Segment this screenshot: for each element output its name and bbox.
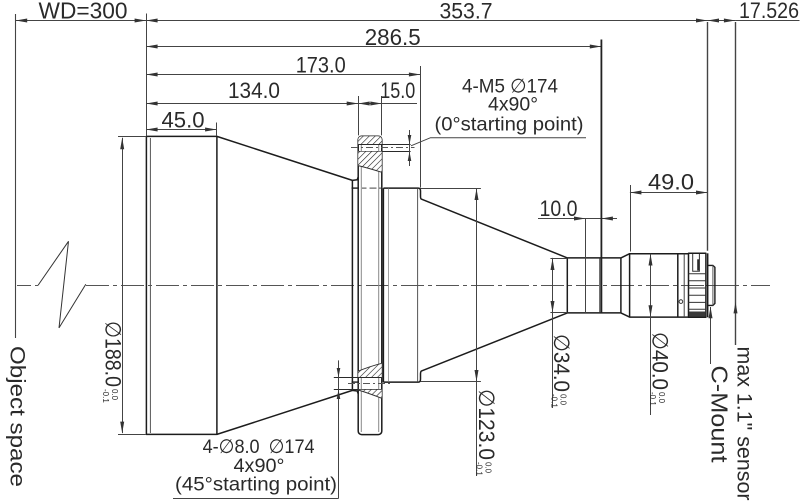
svg-text:4x90°: 4x90° bbox=[488, 93, 538, 115]
svg-text:-0.1: -0.1 bbox=[550, 394, 559, 408]
svg-text:∅34.0: ∅34.0 bbox=[549, 334, 574, 392]
svg-text:17.526: 17.526 bbox=[739, 0, 799, 23]
svg-text:0.0: 0.0 bbox=[559, 394, 568, 406]
svg-text:0.0: 0.0 bbox=[484, 462, 493, 474]
svg-text:134.0: 134.0 bbox=[228, 78, 280, 103]
svg-text:353.7: 353.7 bbox=[440, 0, 493, 24]
svg-text:10.0: 10.0 bbox=[540, 196, 578, 221]
svg-text:Object space: Object space bbox=[6, 346, 29, 487]
svg-text:173.0: 173.0 bbox=[296, 52, 346, 77]
svg-text:0.0: 0.0 bbox=[657, 392, 666, 404]
svg-text:max 1.1" sensor: max 1.1" sensor bbox=[733, 347, 757, 501]
svg-text:15.0: 15.0 bbox=[380, 78, 415, 103]
svg-text:(45°starting point): (45°starting point) bbox=[175, 474, 337, 496]
svg-text:-0.1: -0.1 bbox=[475, 462, 484, 476]
svg-text:∅188.0: ∅188.0 bbox=[101, 321, 126, 387]
svg-text:(0°starting point): (0°starting point) bbox=[435, 114, 584, 136]
svg-text:∅123.0: ∅123.0 bbox=[474, 389, 499, 460]
svg-text:-0.1: -0.1 bbox=[101, 389, 110, 403]
svg-text:0.0: 0.0 bbox=[110, 389, 119, 401]
svg-text:∅40.0: ∅40.0 bbox=[648, 332, 673, 390]
svg-text:C-Mount: C-Mount bbox=[707, 366, 733, 464]
svg-text:49.0: 49.0 bbox=[648, 170, 694, 195]
svg-text:-0.1: -0.1 bbox=[648, 392, 657, 406]
svg-text:286.5: 286.5 bbox=[365, 24, 421, 50]
svg-text:WD=300: WD=300 bbox=[39, 0, 128, 24]
svg-text:45.0: 45.0 bbox=[162, 108, 205, 133]
